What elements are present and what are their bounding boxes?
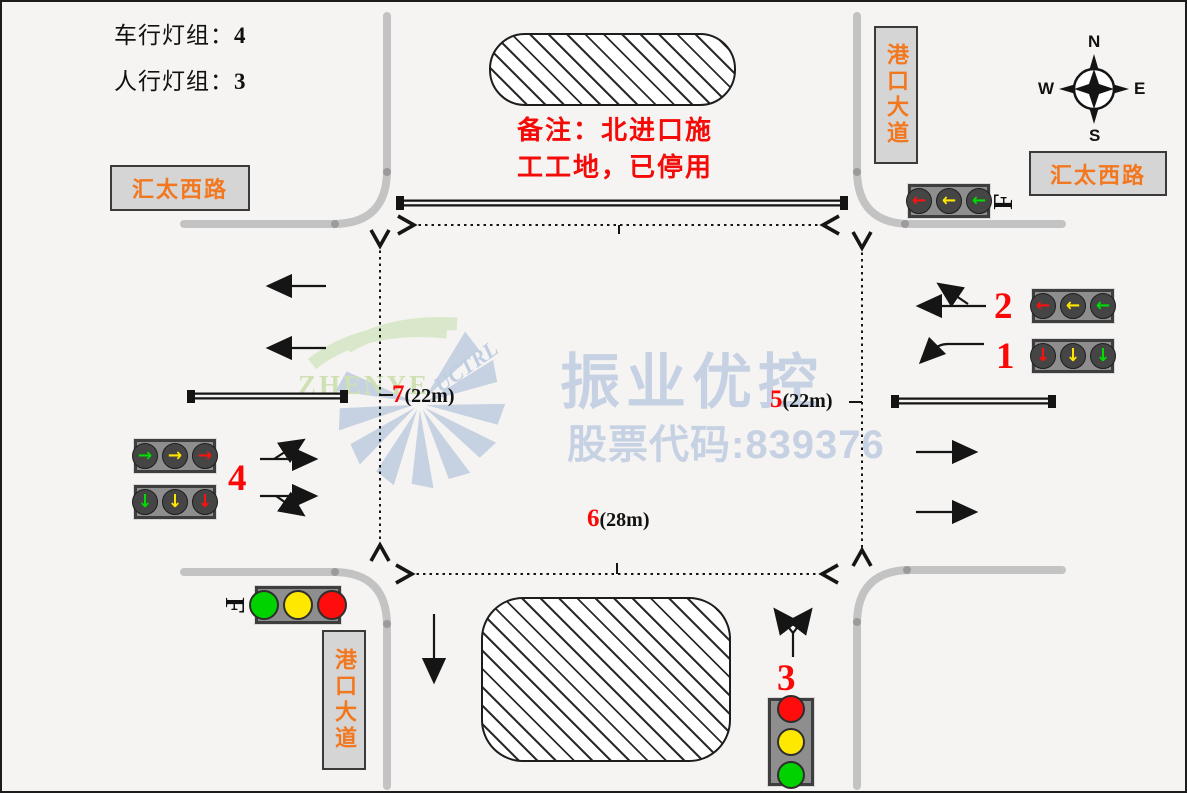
dimension-west-length: (22m) [405, 385, 455, 407]
pedestrian-light-group-label: 人行灯组： [114, 69, 234, 94]
dimension-east-number: 5 [770, 386, 783, 413]
yellow-arrow-lens: ↓ [1060, 343, 1086, 369]
compass-icon [1059, 54, 1129, 124]
dimension-east-length: (22m) [783, 390, 833, 412]
signal-group-1-number: 1 [996, 338, 1015, 375]
red-arrow-lens: ↓ [192, 489, 218, 515]
red-arrow-lens: ← [1030, 293, 1056, 319]
green-arrow-lens: ↓ [1090, 343, 1116, 369]
yellow-lens [283, 590, 313, 620]
vehicle-light-group-label: 车行灯组： [114, 23, 234, 48]
north-construction-zone [489, 33, 736, 106]
green-lens [249, 590, 279, 620]
compass-south-label: S [1089, 126, 1100, 146]
signal-head-group-1: ↓ ↓ ↓ [1032, 339, 1114, 373]
signal-group-3-number: 3 [777, 660, 796, 697]
road-label-north: 港口大道 [874, 26, 918, 164]
pedestrian-signal-icon-southwest: F [221, 597, 248, 614]
pedestrian-light-group-value: 3 [234, 69, 247, 94]
road-label-south: 港口大道 [322, 630, 366, 770]
construction-note-line1: 备注：北进口施 [480, 112, 750, 149]
red-lens [317, 590, 347, 620]
dimension-east: 5(22m) [770, 386, 832, 414]
dimension-west: 7(22m) [392, 381, 454, 409]
green-arrow-lens: ↓ [132, 489, 158, 515]
south-construction-zone [481, 597, 731, 762]
construction-note-line2: 工工地，已停用 [480, 149, 750, 186]
green-lens [777, 761, 805, 789]
red-arrow-lens: → [192, 443, 218, 469]
green-arrow-lens: ← [1090, 293, 1116, 319]
dimension-south-length: (28m) [600, 509, 650, 531]
signal-head-northeast: ← ← ← [908, 184, 990, 218]
signal-head-group-2: ← ← ← [1032, 289, 1114, 323]
yellow-lens [777, 728, 805, 756]
yellow-arrow-lens: ↓ [162, 489, 188, 515]
road-label-west: 汇太西路 [110, 165, 250, 211]
yellow-arrow-lens: → [162, 443, 188, 469]
signal-head-group-4-upper: → → → [134, 439, 216, 473]
road-label-east: 汇太西路 [1029, 151, 1167, 196]
signal-group-2-number: 2 [994, 288, 1013, 325]
dimension-west-number: 7 [392, 381, 405, 408]
red-lens [777, 695, 805, 723]
green-arrow-lens: → [132, 443, 158, 469]
yellow-arrow-lens: ← [1060, 293, 1086, 319]
red-arrow-lens: ← [906, 188, 932, 214]
pedestrian-signal-icon-northeast: F [990, 193, 1017, 210]
yellow-arrow-lens: ← [936, 188, 962, 214]
signal-group-4-number: 4 [228, 460, 247, 497]
vehicle-light-group-value: 4 [234, 23, 247, 48]
dimension-south: 6(28m) [587, 505, 649, 533]
vehicle-light-group-count: 车行灯组：4 [114, 16, 247, 50]
signal-head-group-4-lower: ↓ ↓ ↓ [134, 485, 216, 519]
intersection-diagram: 振业优控 股票代码:839376 ZHENYE UCTRL [0, 0, 1187, 793]
compass-east-label: E [1134, 79, 1145, 99]
compass-west-label: W [1038, 79, 1054, 99]
signal-head-group-3 [768, 698, 814, 786]
red-arrow-lens: ↓ [1030, 343, 1056, 369]
dimension-south-number: 6 [587, 505, 600, 532]
construction-note: 备注：北进口施 工工地，已停用 [480, 112, 750, 186]
pedestrian-light-group-count: 人行灯组：3 [114, 62, 247, 96]
pedestrian-signal-head-southwest [255, 586, 341, 624]
compass-north-label: N [1088, 32, 1100, 52]
